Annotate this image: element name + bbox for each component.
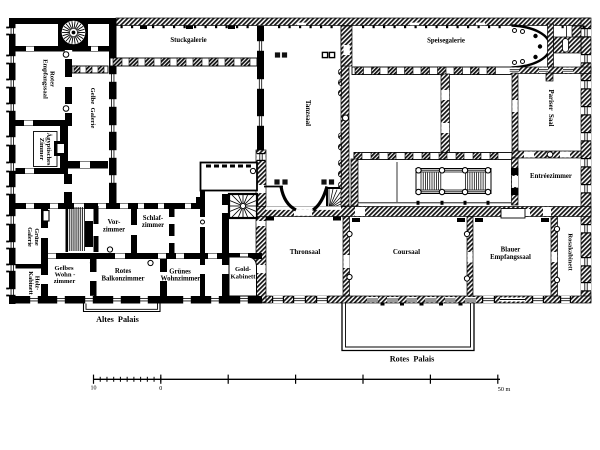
- svg-text:Empfangssaal: Empfangssaal: [490, 254, 531, 261]
- svg-text:Roter: Roter: [49, 71, 56, 87]
- svg-text:Balkonzimmer: Balkonzimmer: [101, 276, 144, 283]
- svg-text:Grünes: Grünes: [169, 269, 191, 276]
- svg-text:Schlaf-: Schlaf-: [143, 215, 164, 222]
- svg-text:Gold-: Gold-: [235, 266, 251, 273]
- svg-text:zimmer: zimmer: [142, 222, 164, 229]
- svg-text:Speisegalerie: Speisegalerie: [427, 38, 465, 45]
- svg-text:Altes Palais: Altes Palais: [96, 315, 139, 324]
- svg-text:Gelbe Galerie: Gelbe Galerie: [89, 88, 96, 129]
- svg-text:Entréezimmer: Entréezimmer: [530, 173, 572, 180]
- svg-text:Tanzsaal: Tanzsaal: [304, 100, 312, 126]
- svg-text:10: 10: [91, 386, 97, 392]
- svg-text:Blauer: Blauer: [501, 247, 521, 254]
- svg-text:Rotes Palais: Rotes Palais: [390, 355, 435, 364]
- svg-text:Grüne: Grüne: [33, 228, 40, 245]
- svg-text:zimmer: zimmer: [54, 278, 76, 285]
- svg-text:Thronsaal: Thronsaal: [290, 248, 321, 256]
- svg-text:Ägyptisches: Ägyptisches: [45, 133, 52, 166]
- svg-text:50 m: 50 m: [498, 386, 511, 393]
- svg-text:Zimmer: Zimmer: [38, 138, 45, 161]
- svg-text:Stuckgalerie: Stuckgalerie: [170, 37, 206, 44]
- svg-text:Rotes: Rotes: [115, 268, 132, 275]
- svg-text:Pariser Saal: Pariser Saal: [547, 90, 554, 127]
- svg-text:Empfangssaal: Empfangssaal: [42, 59, 49, 99]
- svg-text:zimmer: zimmer: [103, 227, 125, 234]
- svg-text:Wohnzimmer: Wohnzimmer: [161, 276, 201, 283]
- svg-text:Kabinett: Kabinett: [231, 274, 257, 281]
- svg-text:Coursaal: Coursaal: [393, 248, 420, 256]
- svg-text:0: 0: [159, 386, 162, 392]
- svg-text:Rosakabinett: Rosakabinett: [567, 233, 574, 271]
- svg-text:Vor-: Vor-: [108, 219, 121, 226]
- svg-text:Kabinett: Kabinett: [27, 271, 34, 295]
- svg-text:Galerie: Galerie: [26, 227, 33, 247]
